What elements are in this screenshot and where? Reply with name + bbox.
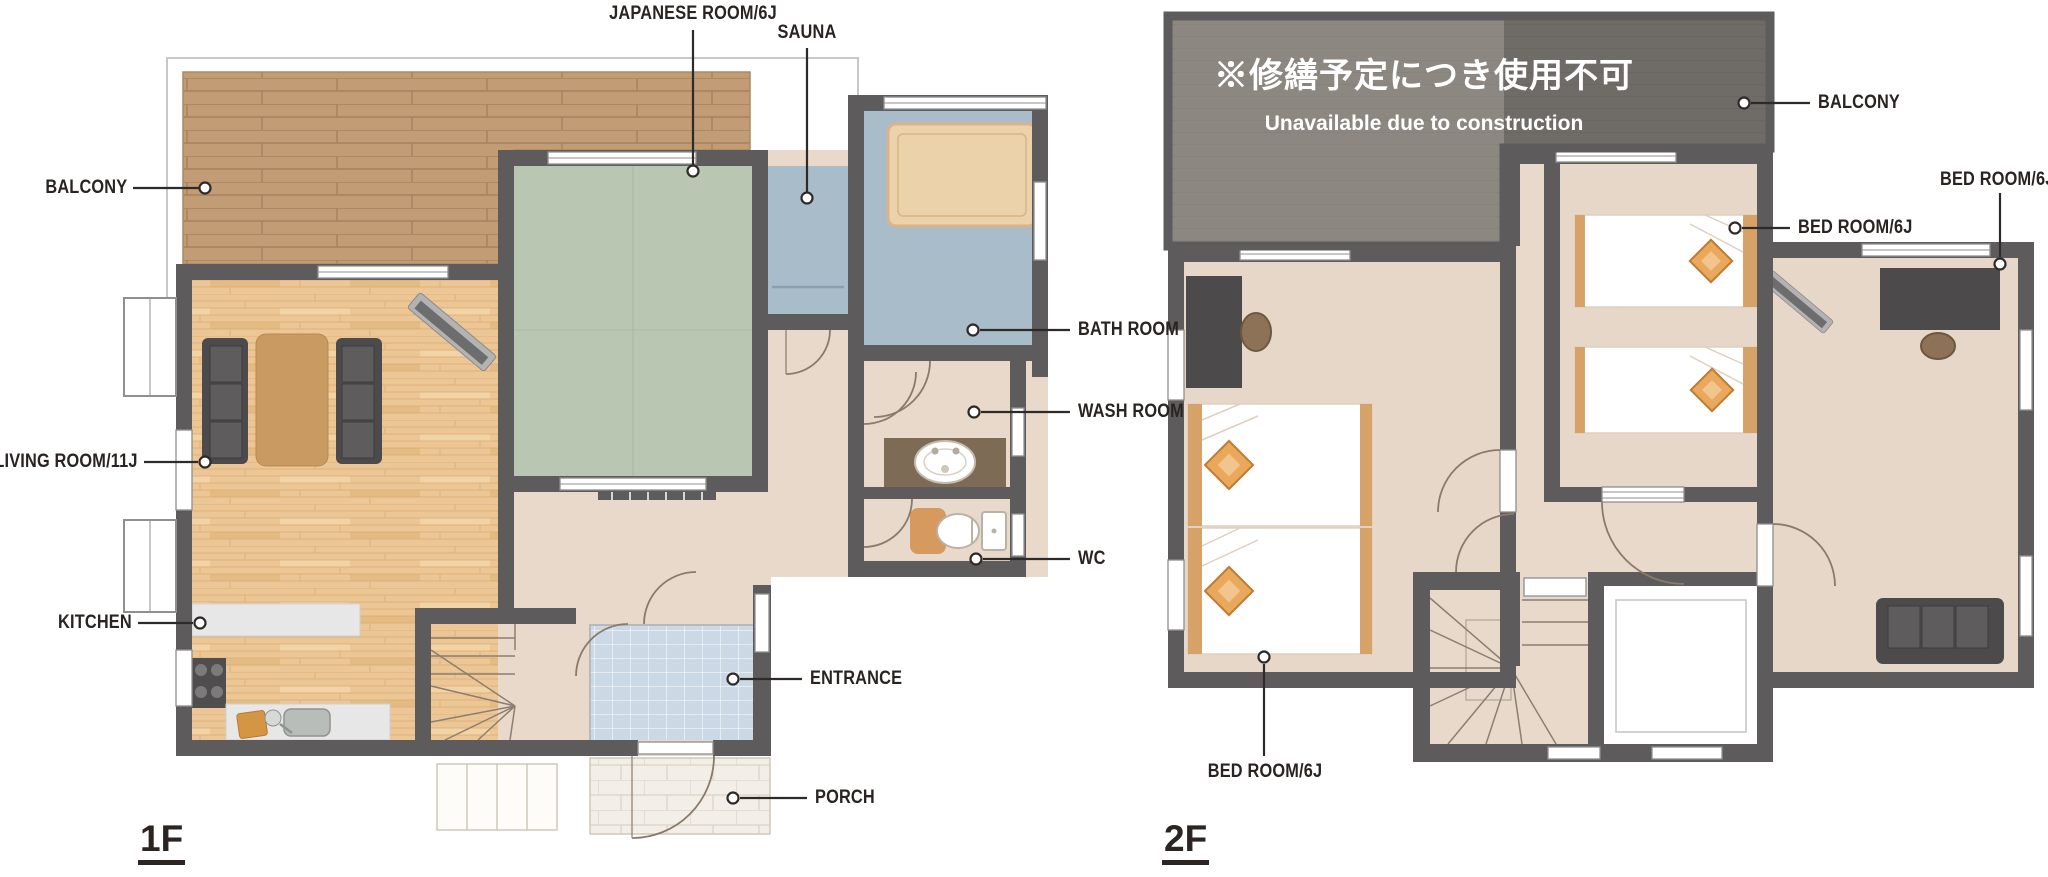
label-balcony-1f: BALCONY <box>45 178 127 197</box>
label-sauna: SAUNA <box>778 23 837 42</box>
label-bedroom-middle: BED ROOM/6J <box>1798 218 1912 237</box>
floor1-plan <box>124 58 1048 838</box>
bed-middle-2 <box>1575 347 1757 433</box>
bedroom-middle-floor <box>1560 164 1757 487</box>
bed-left-1 <box>1188 404 1372 526</box>
label-bath-room: BATH ROOM <box>1078 320 1179 339</box>
void-2f <box>1604 586 1757 744</box>
label-balcony-2f: BALCONY <box>1818 93 1900 112</box>
label-porch: PORCH <box>815 788 875 807</box>
desk-right <box>1880 268 2000 330</box>
label-bedroom-left: BED ROOM/6J <box>1208 762 1322 781</box>
sofa-right <box>336 338 382 464</box>
label-japanese-room: JAPANESE ROOM/6J <box>609 4 777 23</box>
cutting-board <box>236 710 267 739</box>
engawa-ledge <box>598 492 716 500</box>
floorplan-canvas <box>0 0 2048 877</box>
notice-japanese: ※修繕予定につき使用不可 <box>1214 48 1634 97</box>
label-kitchen: KITCHEN <box>58 613 132 632</box>
label-living-room: LIVING ROOM/11J <box>0 452 138 471</box>
sofa-left <box>202 338 248 464</box>
wc-fixtures <box>910 508 1006 554</box>
label-wc: WC <box>1078 549 1106 568</box>
label-entrance: ENTRANCE <box>810 669 902 688</box>
bed-left-2 <box>1188 528 1372 654</box>
floorplan-page: JAPANESE ROOM/6J SAUNA BALCONY LIVING RO… <box>0 0 2048 877</box>
floor2-title: 2F <box>1162 820 1209 865</box>
washroom-fixtures <box>884 438 1006 487</box>
dining-table <box>256 334 328 466</box>
sofa-2f <box>1876 598 2004 664</box>
bathtub <box>888 124 1036 226</box>
notice-english: Unavailable due to construction <box>1265 112 1584 136</box>
desk-chair-left <box>1241 313 1271 351</box>
desk-left <box>1186 276 1242 388</box>
label-bedroom-right: BED ROOM/6J <box>1940 170 2048 189</box>
floor1-title: 1F <box>138 820 185 865</box>
desk-chair-right <box>1921 333 1955 359</box>
label-wash-room: WASH ROOM <box>1078 402 1184 421</box>
